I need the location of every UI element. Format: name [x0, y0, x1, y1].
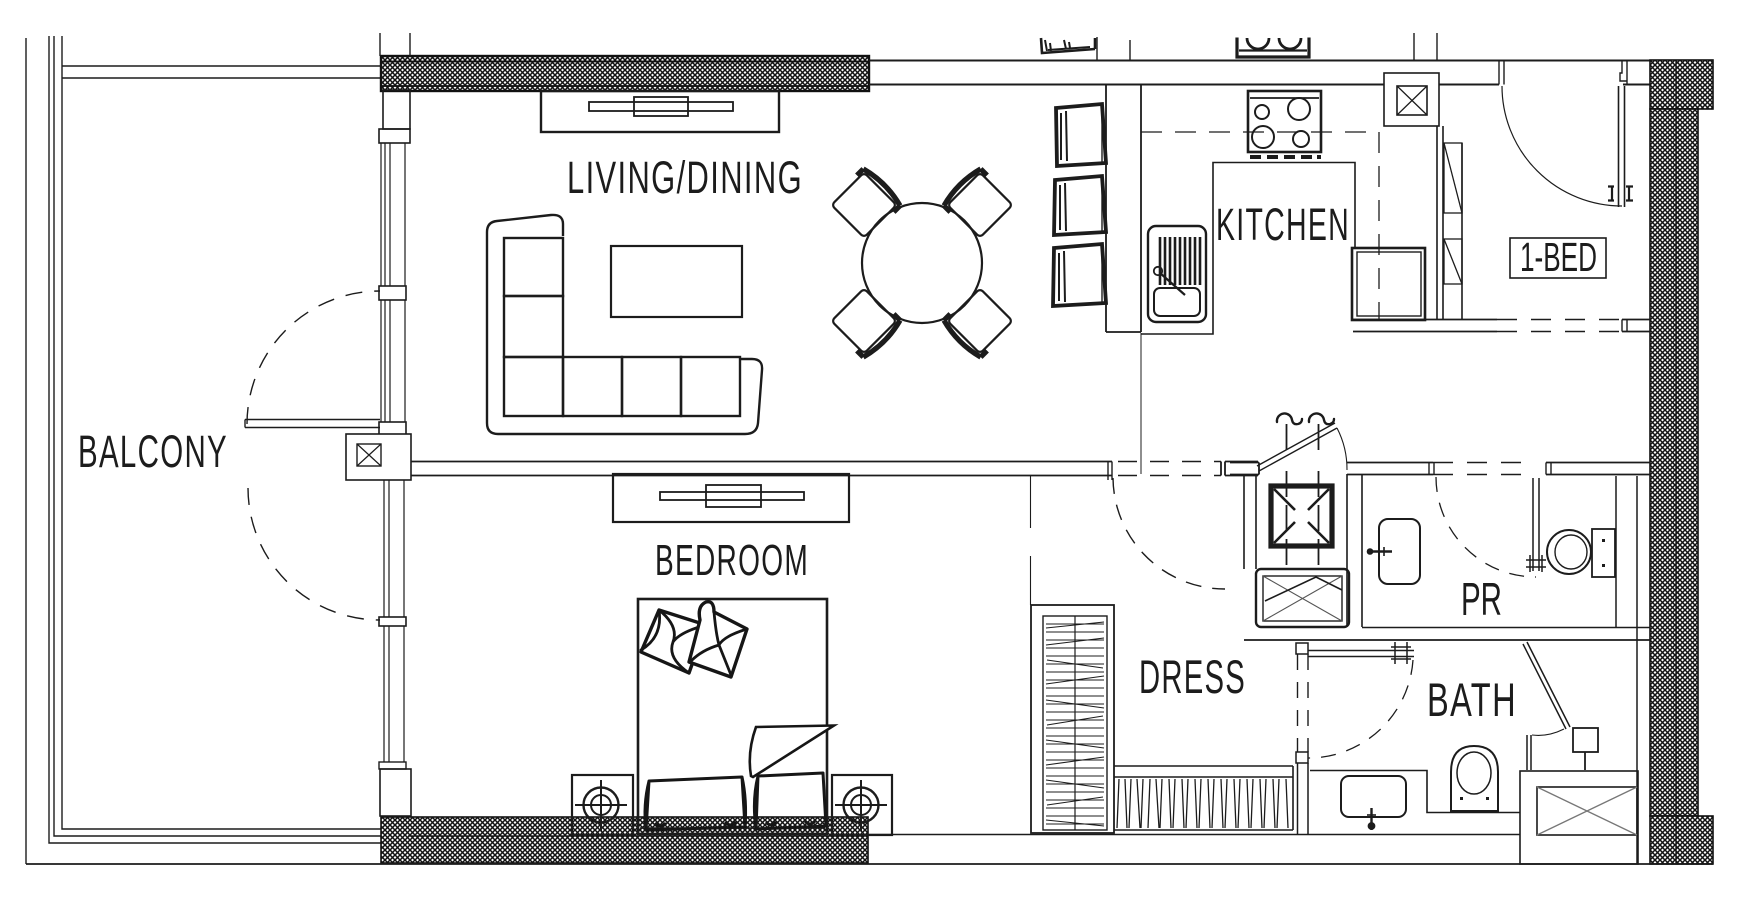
svg-text:LIVING/DINING: LIVING/DINING: [567, 152, 803, 203]
svg-text:1-BED: 1-BED: [1520, 234, 1597, 280]
svg-text:BEDROOM: BEDROOM: [655, 536, 809, 585]
svg-text:PR: PR: [1461, 573, 1502, 625]
svg-text:BATH: BATH: [1427, 673, 1517, 726]
svg-text:DRESS: DRESS: [1139, 650, 1246, 703]
svg-text:KITCHEN: KITCHEN: [1216, 199, 1350, 250]
svg-text:BALCONY: BALCONY: [78, 426, 228, 477]
